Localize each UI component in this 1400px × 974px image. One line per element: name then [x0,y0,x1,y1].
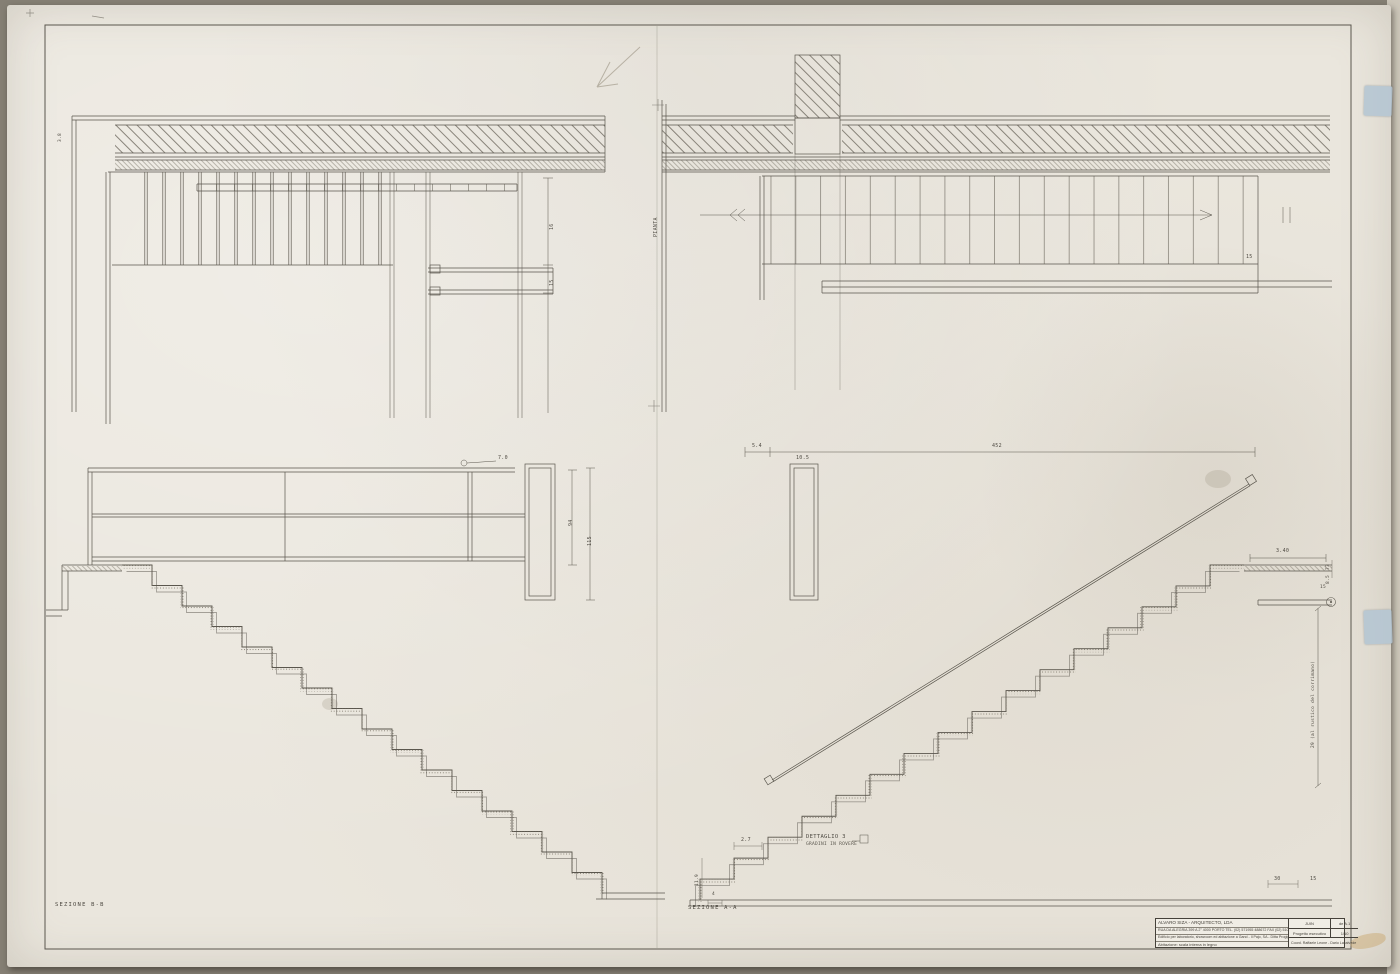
detail-marker [461,460,467,466]
architect-address: RUA DA ALEGRIA 399 A 2° 4000 PORTO TEL. … [1156,928,1288,935]
label-dettaglio: DETTAGLIO 3 [806,835,846,841]
dim-15-upper: 15 [550,279,555,286]
label-dettaglio-sub: GRADINI IN ROVERE [806,843,857,848]
dim-7-0: 7.0 [498,456,508,461]
sheet-number-cell: de A.1 [1331,919,1358,928]
dim-16: 16 [550,223,555,230]
dim-4: 4 [712,893,715,898]
phase-cell: Progetto esecutivo [1289,929,1331,938]
credits-cell: Coord. Raffaele Leone - Dario Lacalvede [1289,938,1358,947]
pencil-sketch [597,47,640,87]
dim-3-40: 3.40 [1276,549,1289,554]
tape-fragment [1363,610,1392,645]
label-sezione-bb: SEZIONE B-B [55,903,105,909]
upper-left-section-drawing [72,116,605,424]
title-block: ALVARO SIZA - ARQUITECTO, LDA RUA DA ALE… [1155,918,1345,948]
label-sezione-aa: SEZIONE A-A [688,906,738,912]
upper-right-plan-drawing [662,55,1332,412]
note-rail-height: 29 (al rustico del corrimano) [1312,661,1317,748]
slab-hatch [115,125,605,153]
dim-452: 452 [992,444,1002,449]
title-block-right: JUIN de A.1 Progetto esecutivo 1/10 Coor… [1289,919,1358,947]
title-block-left: ALVARO SIZA - ARQUITECTO, LDA RUA DA ALE… [1156,919,1289,947]
dim-94: 94 [569,519,574,526]
newel-post [525,464,555,600]
dim-5-4: 5.4 [752,444,762,449]
dimension-lines [568,468,595,600]
balusters [135,172,393,265]
drawing-title: Abitazione: scala interna in legno [1156,942,1288,947]
project-description: Edificio per laboratorio, showroom ed ab… [1156,935,1288,942]
dim-30: 30 [1274,877,1281,882]
dim-10-5: 10.5 [796,456,809,461]
stringer-lines [822,264,1332,293]
dim-2-7: 2.7 [741,838,751,843]
tread-texture [122,567,602,895]
dim-15-floor: 15 [1310,877,1317,882]
pier-hatch [795,55,840,118]
tread-texture [700,567,1244,902]
stair-treads-plan [762,176,1259,264]
lower-right-section-aa-drawing [690,447,1336,907]
handrail [772,484,1250,782]
parapet-elevation [88,468,525,565]
note-corner: 3.8 [59,133,64,142]
registration-marks [26,9,104,18]
architect-name: ALVARO SIZA - ARQUITECTO, LDA [1156,919,1288,928]
tape-fragment [1363,86,1392,117]
date-cell: JUIN [1289,919,1331,928]
dim-73: 73 [1327,564,1332,570]
dim-15-plan: 15 [1246,255,1253,260]
scale-cell: 1/10 [1331,929,1358,938]
dim-11-9: 11.9 [696,874,701,886]
tread-detail [428,268,553,294]
dimension-line [543,178,553,413]
dim-8-5: 8.5 [1327,575,1332,584]
detail-callout-box [860,835,868,843]
scanned-architectural-drawing: 3.8 PIANTA 16 15 7.0 94 115 5.4 452 10.5… [0,0,1400,974]
label-pianta: PIANTA [654,217,659,237]
small-dimensions [702,842,1298,906]
finish-hatch [115,160,605,170]
dim-15-landing: 15 [1320,586,1326,591]
dim-115: 115 [588,536,593,546]
